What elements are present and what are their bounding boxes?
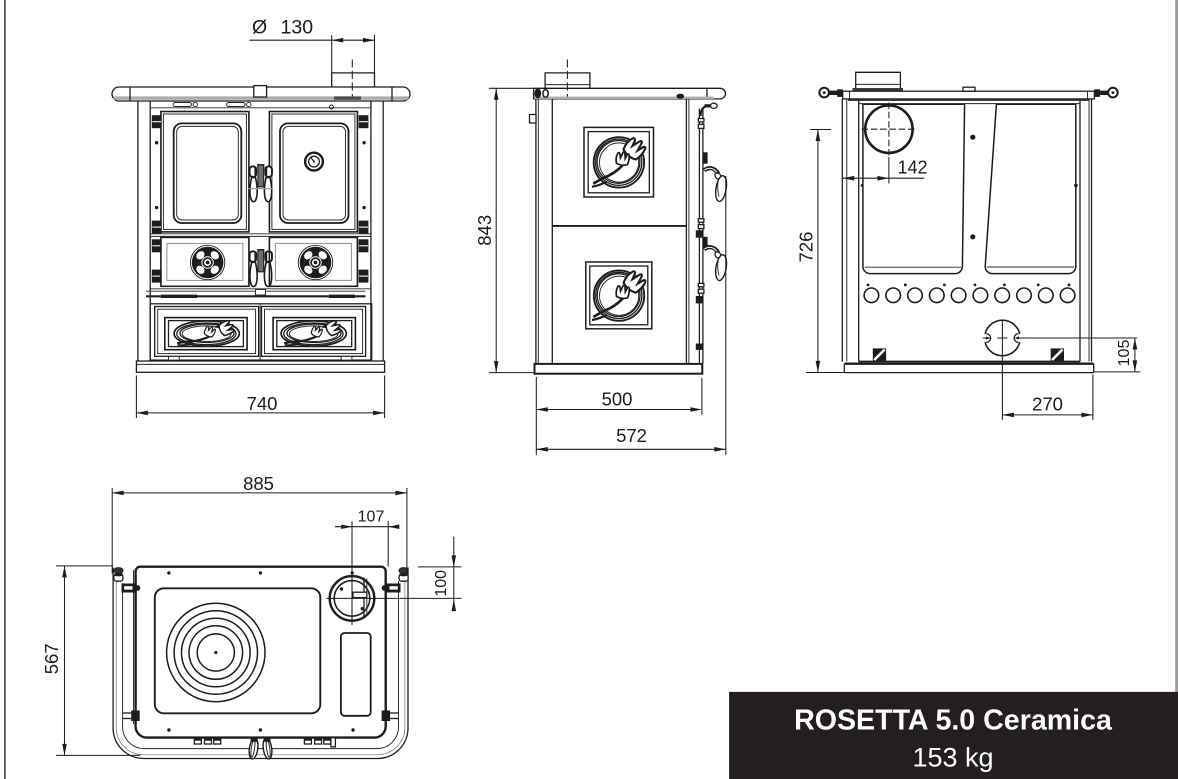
svg-text:500: 500	[602, 388, 633, 409]
svg-text:130: 130	[281, 17, 314, 39]
svg-text:567: 567	[41, 643, 62, 674]
svg-text:885: 885	[243, 473, 274, 494]
svg-text:726: 726	[796, 232, 817, 263]
svg-text:105: 105	[1116, 340, 1133, 367]
svg-text:Ø: Ø	[252, 17, 267, 39]
svg-text:107: 107	[358, 508, 385, 525]
svg-text:153 kg: 153 kg	[912, 743, 993, 773]
svg-text:270: 270	[1032, 393, 1063, 414]
svg-text:ROSETTA 5.0 Ceramica: ROSETTA 5.0 Ceramica	[794, 705, 1113, 737]
svg-text:142: 142	[897, 158, 927, 178]
svg-text:572: 572	[616, 425, 647, 446]
svg-text:100: 100	[433, 570, 450, 597]
svg-text:843: 843	[474, 215, 495, 246]
svg-text:740: 740	[247, 393, 278, 414]
